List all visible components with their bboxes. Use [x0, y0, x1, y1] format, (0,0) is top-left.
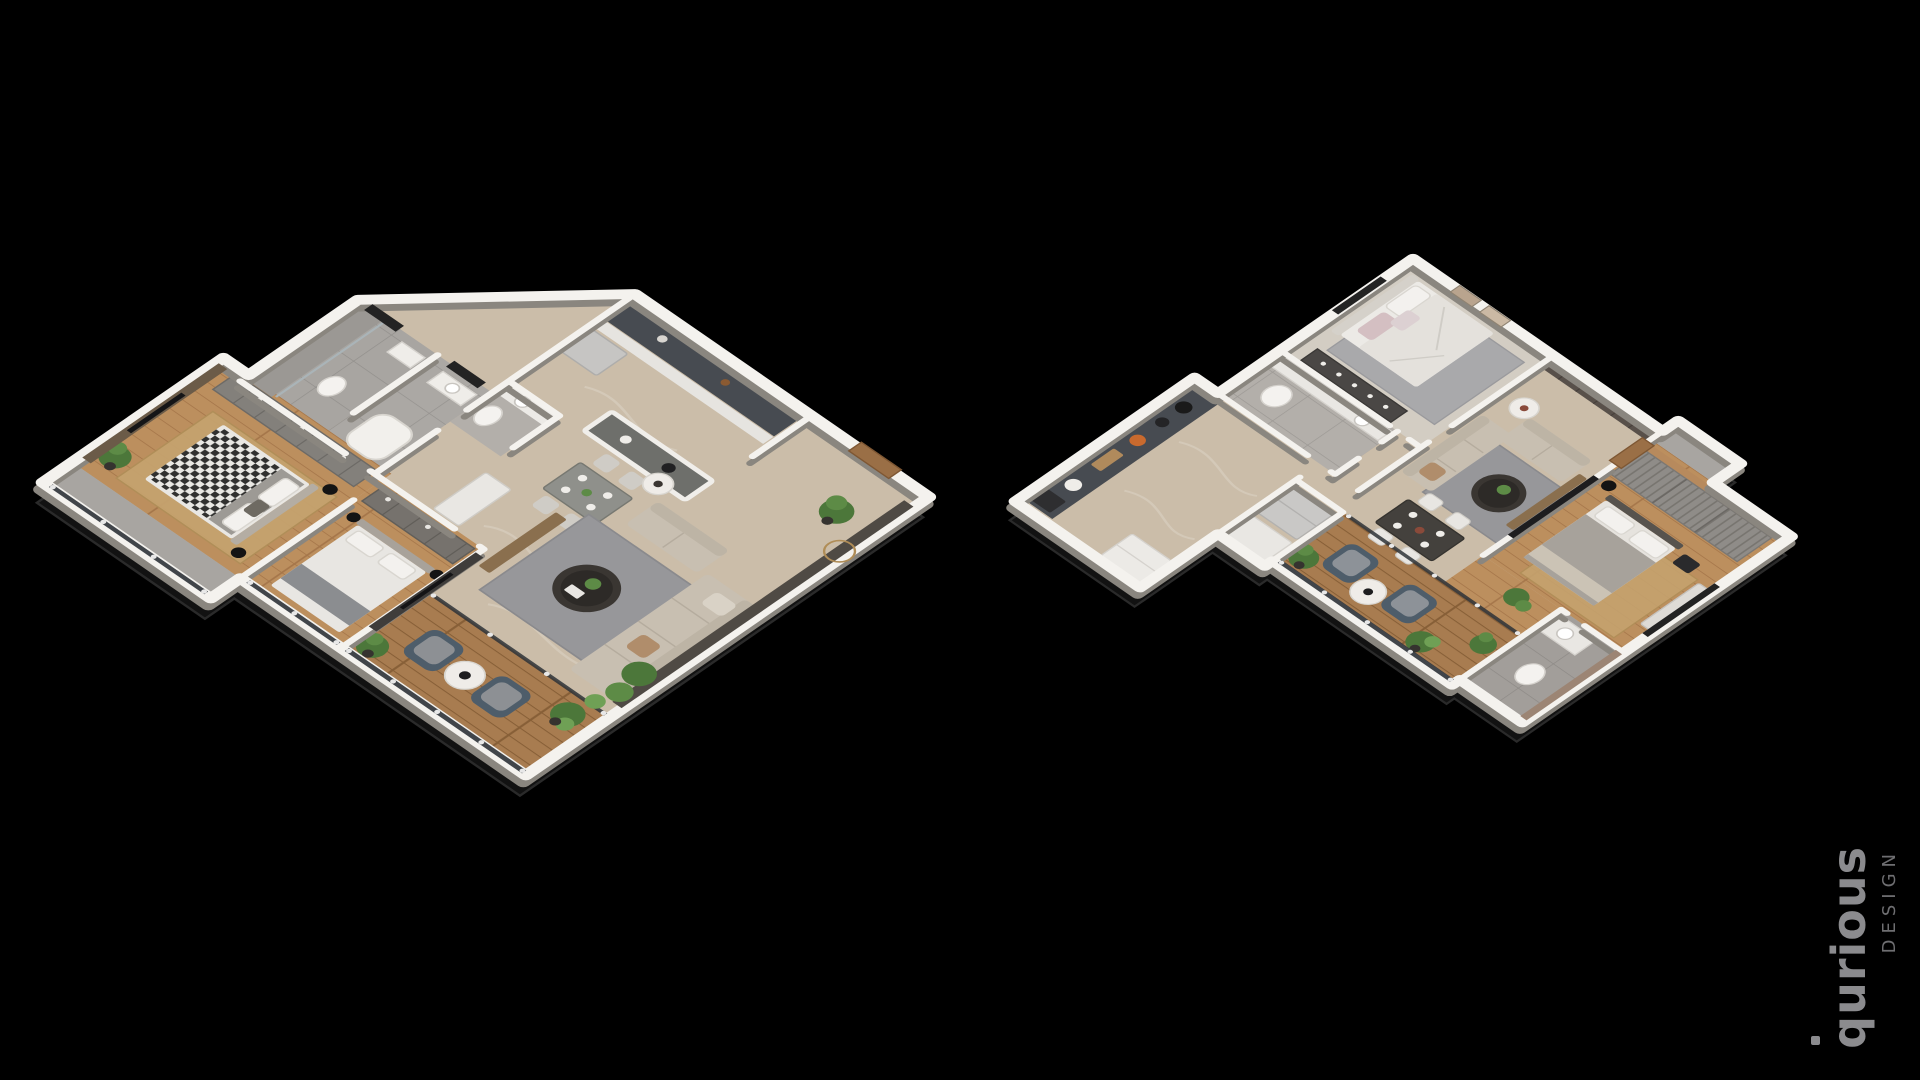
render-canvas: qurious DESIGN — [0, 0, 1920, 1080]
floor-plan-left — [30, 248, 960, 828]
logo-dot — [1811, 1036, 1820, 1045]
plan-left-isometric-group — [30, 248, 947, 816]
logo-brand: qurious — [1824, 846, 1875, 1049]
logo-subtitle: DESIGN — [1879, 848, 1901, 953]
floor-plan-right — [1005, 236, 1865, 796]
plan-right-isometric-group — [1005, 236, 1830, 796]
watermark-logo: qurious DESIGN — [1824, 846, 1900, 1049]
